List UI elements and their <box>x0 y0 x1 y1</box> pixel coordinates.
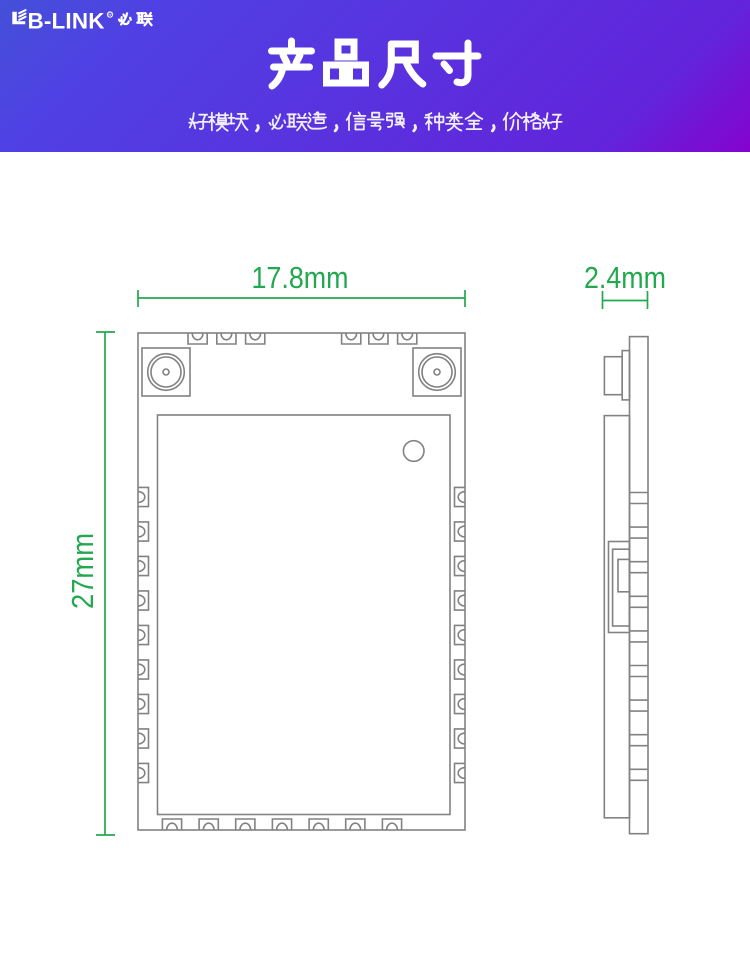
svg-text:R: R <box>108 12 112 18</box>
svg-text:B-LINK: B-LINK <box>28 8 105 33</box>
svg-text:17.8mm: 17.8mm <box>252 260 349 295</box>
svg-text:2.4mm: 2.4mm <box>584 260 666 295</box>
svg-text:27mm: 27mm <box>65 533 100 609</box>
